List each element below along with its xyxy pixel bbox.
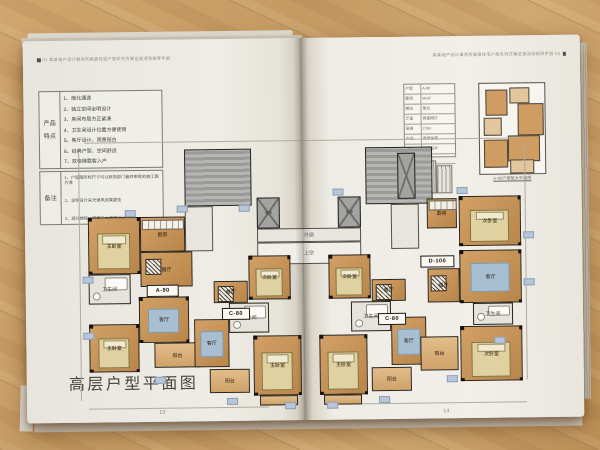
balcony-block: 阳台 [372, 367, 412, 391]
mini-plan-room [485, 90, 507, 116]
column-joint [319, 335, 323, 339]
room-label: 次卧室 [262, 274, 277, 281]
inset-cell-label: 朝向 [404, 105, 421, 114]
column-joint [136, 369, 140, 373]
column-joint [517, 195, 521, 199]
column-joint [298, 335, 302, 339]
dimension-tag [379, 396, 390, 403]
room-label: 主卧室 [270, 362, 285, 369]
inset-cell-value: 90㎡ [421, 94, 454, 103]
room-label: 餐厅 [161, 266, 171, 273]
shaft-block: 电梯 [338, 196, 361, 227]
room: 主卧室 [89, 324, 140, 373]
room-label: 次卧室 [482, 217, 497, 224]
inset-caption: A-90户型放大平面图 [472, 175, 552, 182]
room: 客厅 [194, 319, 230, 367]
column-joint [461, 378, 465, 382]
room-label: 餐厅 [384, 286, 394, 293]
furniture-bed [256, 268, 283, 296]
dimension-tag [83, 333, 94, 340]
column-joint [518, 242, 522, 246]
room-label: 客厅 [404, 337, 414, 344]
dimension-tag [456, 187, 467, 194]
inset-cell-value: 两室两厅 [422, 114, 455, 123]
room-label: 次卧室 [484, 350, 499, 357]
column-joint [459, 243, 463, 247]
bath-block: 卫生间 [473, 302, 513, 324]
column-joint [459, 250, 463, 254]
column-joint [367, 254, 371, 258]
room: 次卧室 [328, 254, 371, 299]
room-label: 主卧室 [336, 361, 351, 368]
room-label: 阳台 [225, 377, 235, 384]
furniture-bed [471, 341, 511, 376]
elevation-tower [436, 165, 452, 193]
inset-cell-value: 2.9m [422, 124, 455, 133]
dimension-tag [327, 402, 338, 409]
room: 次卧室 [459, 195, 522, 246]
furniture-table [145, 259, 161, 275]
inset-table-row: 层高2.9m [405, 124, 455, 135]
room-label: 阳台 [434, 350, 444, 357]
dimension-tag [332, 189, 343, 196]
inset-table-row: 厅室两室两厅 [405, 114, 455, 125]
column-joint [136, 324, 140, 328]
column-joint [298, 392, 302, 396]
room: 厨房 [427, 198, 457, 228]
furniture-bed [336, 267, 363, 295]
room: 厨房 [140, 216, 185, 252]
dimension-tag [125, 210, 136, 217]
room: 次卧室 [460, 325, 523, 381]
dimension-line [84, 137, 522, 143]
dimension-tag [524, 278, 535, 285]
dimension-tag [494, 337, 505, 344]
column-joint [320, 391, 324, 395]
dimension-line [89, 406, 269, 409]
unit-label: C-80 [222, 308, 250, 320]
unit-label: A-90 [147, 285, 179, 297]
room-label: 客厅 [159, 316, 169, 323]
inset-table-row: 面积90㎡ [404, 94, 454, 105]
walk-block [185, 206, 214, 251]
book-spread: 01 某某地产设计事务所高层住宅户型系列方案征选活动指导手册 某某地产设计事务所… [18, 27, 595, 436]
dimension-tag [447, 375, 458, 382]
room: 餐厅 [140, 251, 192, 287]
room-label: 电梯 [346, 209, 353, 214]
column-joint [460, 326, 464, 330]
inset-cell-label: 厅室 [405, 115, 422, 124]
dimension-line [78, 153, 82, 401]
open-booklet: 01 某某地产设计事务所高层住宅户型系列方案征选活动指导手册 某某地产设计事务所… [23, 35, 585, 424]
room-label: 次卧室 [342, 273, 357, 280]
room-label: 餐厅 [439, 282, 449, 289]
walk-block: 外廊 [257, 227, 361, 242]
column-joint [90, 369, 94, 373]
dimension-tag [227, 398, 238, 405]
column-joint [254, 392, 258, 396]
page-number-right: 14 [443, 408, 449, 414]
column-joint [185, 296, 189, 300]
shaft-block: 电梯 [257, 197, 280, 228]
bath-block: 卫生间 [89, 274, 131, 305]
unit-label: C-80 [378, 313, 406, 325]
room-label: 主卧室 [107, 242, 122, 249]
furniture-bed [262, 352, 293, 390]
dimension-tag [155, 377, 166, 384]
column-joint [89, 325, 93, 329]
inset-cell-label: 面积 [404, 95, 421, 104]
furniture-bed [98, 338, 130, 369]
furniture-bed [97, 234, 130, 270]
mini-plan-room [484, 118, 502, 136]
column-joint [248, 256, 252, 260]
inset-cell-label: 户型 [404, 85, 421, 94]
room-label: 上空 [304, 249, 314, 256]
balcony-block: 阳台 [210, 369, 250, 393]
room: 客厅 [139, 296, 190, 343]
inset-cell-value: 南北 [421, 104, 454, 113]
room: 主卧室 [319, 334, 368, 395]
walk-block [391, 204, 420, 249]
column-joint [364, 391, 368, 395]
column-joint [518, 299, 522, 303]
inset-mini-plan [478, 82, 546, 175]
inset-table-row: 朝向南北 [404, 104, 454, 115]
room: 客厅 [459, 249, 522, 303]
room: 主卧室 [88, 217, 141, 275]
inset-cell-value: A-90 [421, 84, 454, 93]
dimension-tag [177, 205, 188, 212]
column-joint [519, 325, 523, 329]
column-joint [287, 255, 291, 259]
room-label: 阳台 [387, 375, 397, 382]
column-joint [367, 295, 371, 299]
balcony-block: 阳台 [420, 336, 458, 370]
column-joint [460, 300, 464, 304]
photo-of-booklet-on-wooden-desk: 01 某某地产设计事务所高层住宅户型系列方案征选活动指导手册 某某地产设计事务所… [0, 0, 600, 450]
room-label: 电梯 [265, 210, 272, 215]
room-label: 卫生间 [102, 286, 117, 293]
column-joint [249, 296, 253, 300]
furniture-counter [142, 219, 184, 230]
mini-plan-room [517, 103, 543, 135]
shaft-block [397, 153, 416, 199]
inset-cell-label: 层高 [405, 125, 422, 134]
column-joint [519, 377, 523, 381]
furniture-bed [469, 210, 509, 242]
room: 餐厅 [214, 281, 248, 303]
page-number-left: 13 [159, 410, 165, 416]
room: 主卧室 [253, 335, 302, 396]
dimension-tag [239, 205, 250, 212]
column-joint [518, 249, 522, 253]
room-label: 阳台 [172, 352, 182, 359]
column-joint [329, 295, 333, 299]
furniture-bed [328, 352, 359, 390]
column-joint [139, 340, 143, 344]
room-label: 主卧室 [107, 345, 122, 352]
column-joint [287, 296, 291, 300]
mini-plan-room [484, 140, 508, 168]
room-label: 客厅 [486, 273, 496, 280]
room: 餐厅 [427, 268, 459, 302]
room-label: 卫生间 [485, 310, 500, 317]
dimension-tag [523, 231, 534, 238]
column-joint [139, 297, 143, 301]
unit-label: D-100 [420, 255, 454, 267]
inset-table-row: 户型A-90 [404, 84, 454, 95]
room-label: 客厅 [207, 340, 217, 347]
mini-plan-room [510, 159, 534, 173]
core-block [184, 149, 252, 207]
room-label: 餐厅 [226, 288, 236, 295]
room-label: 厨房 [437, 210, 447, 217]
column-joint [364, 334, 368, 338]
column-joint [459, 196, 463, 200]
room-label: 外廊 [304, 231, 314, 238]
column-joint [88, 218, 92, 222]
room: 次卧室 [248, 255, 291, 300]
column-joint [253, 336, 257, 340]
room-label: 厨房 [157, 231, 167, 238]
dimension-tag [285, 402, 296, 409]
room-label: 卫生间 [363, 313, 378, 320]
dimension-tag [83, 277, 94, 284]
plan-title: 高层户型平面图 [69, 369, 199, 395]
room: 餐厅 [372, 279, 406, 301]
column-joint [328, 255, 332, 259]
mini-plan-room [509, 87, 529, 103]
